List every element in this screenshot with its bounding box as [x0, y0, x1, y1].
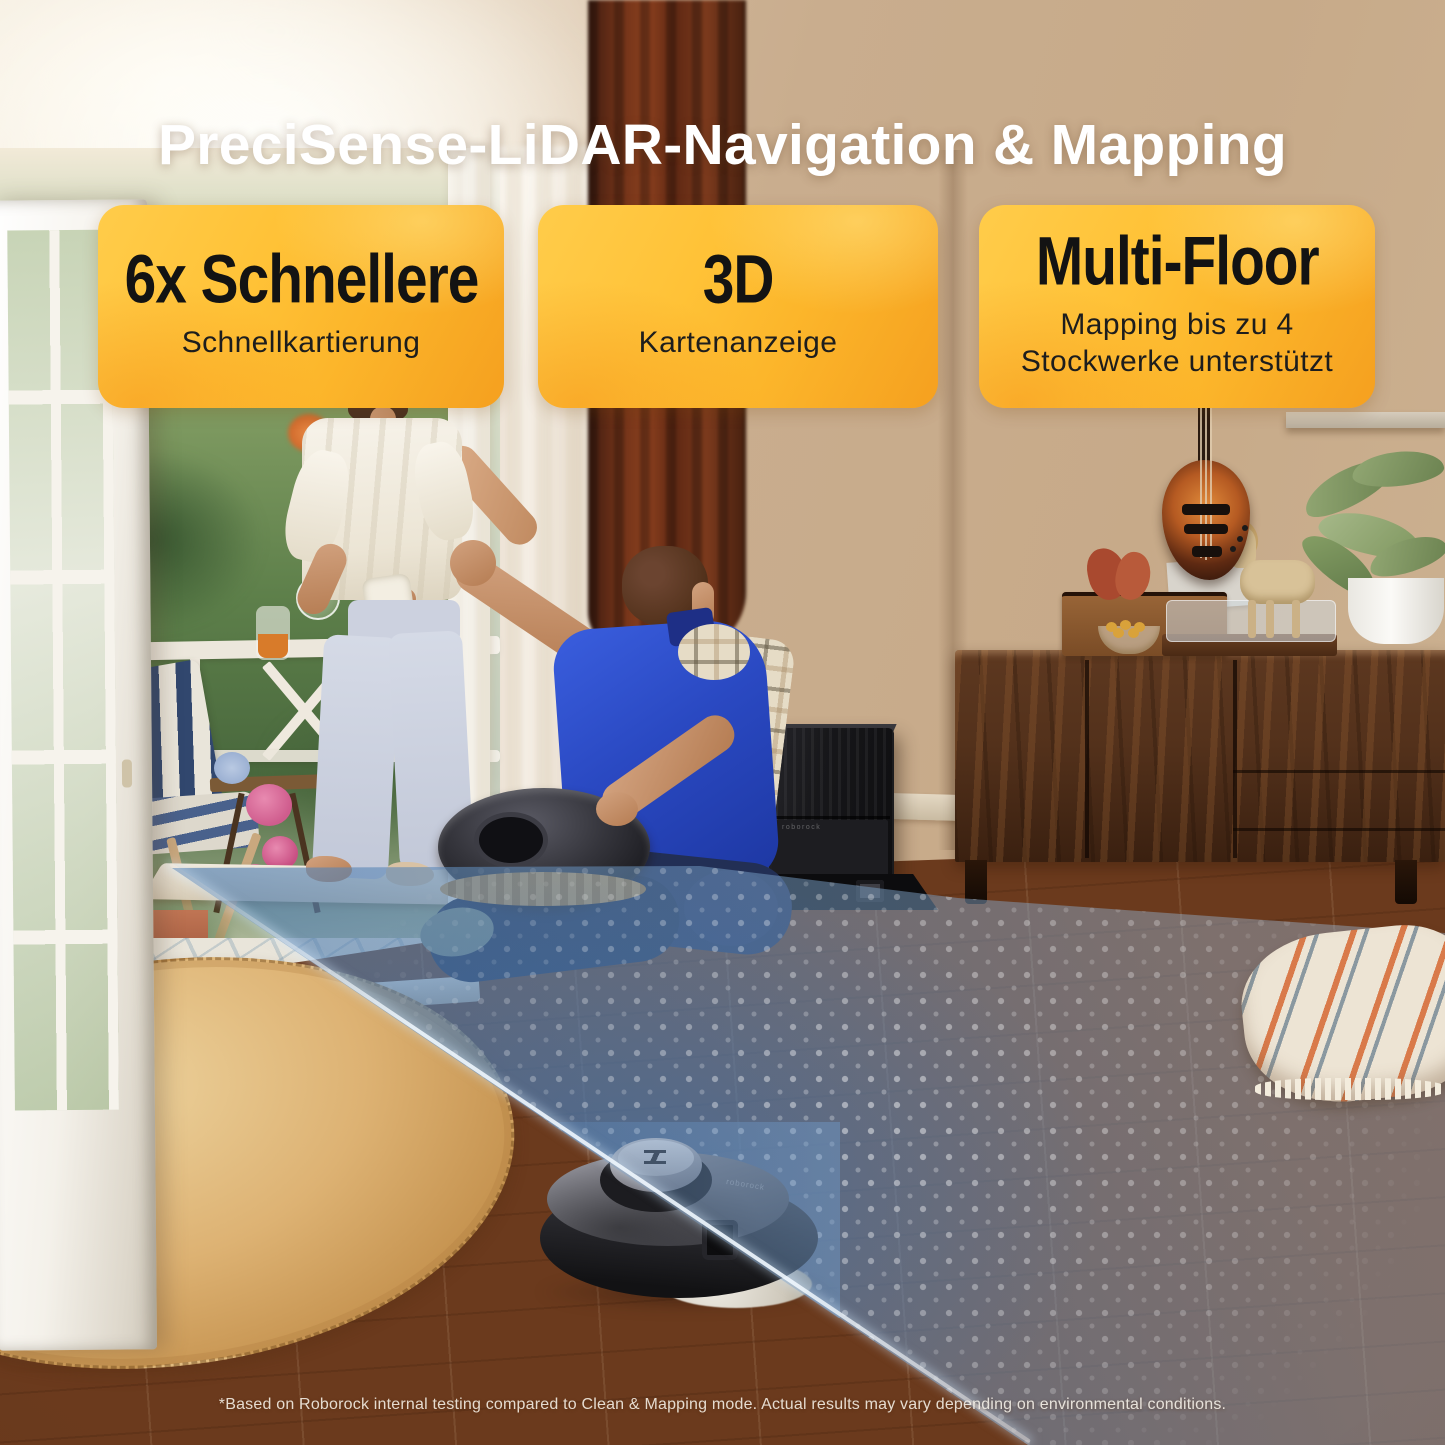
plant-pot — [1348, 578, 1444, 644]
straw-horse-leg — [1248, 600, 1256, 638]
juice-liquid — [258, 634, 288, 658]
robot-vacuum: roborock — [528, 1122, 840, 1318]
man-hand — [596, 792, 638, 826]
product-marketing-image: roborock — [0, 0, 1445, 1445]
plaid-wrap-knot — [678, 624, 750, 680]
disclaimer-text: *Based on Roborock internal testing comp… — [0, 1396, 1445, 1414]
blanket-fringe — [1255, 1078, 1445, 1100]
woman-jeans-leg — [312, 634, 401, 880]
sideboard-leg — [1395, 860, 1417, 904]
feature-card-subtitle: Mapping bis zu 4 Stockwerke unterstützt — [1005, 307, 1350, 380]
handpan-port — [474, 812, 548, 868]
feature-card-title: 6x Schnellere — [124, 246, 478, 314]
guitar-knob — [1230, 546, 1236, 552]
guitar-knob — [1237, 536, 1243, 542]
feature-card-subtitle: Kartenanzeige — [639, 325, 838, 362]
sideboard-drawer-seam — [1233, 828, 1445, 831]
guitar-string — [1200, 408, 1202, 558]
straw-horse-leg — [1266, 600, 1274, 638]
guitar-string — [1210, 408, 1212, 558]
feature-card-fast-mapping: 6x Schnellere Schnellkartierung — [98, 205, 504, 408]
feature-card-multi-floor: Multi-Floor Mapping bis zu 4 Stockwerke … — [979, 205, 1375, 408]
feature-card-title: Multi-Floor — [1036, 228, 1319, 296]
door-handle — [122, 759, 132, 787]
wall-shelf — [1286, 412, 1445, 428]
pink-peony — [246, 784, 292, 826]
page-title: PreciSense-LiDAR-Navigation & Mapping — [0, 112, 1445, 178]
feature-card-3d-map: 3D Kartenanzeige — [538, 205, 938, 408]
guitar-bridge — [1192, 546, 1222, 557]
guitar-pickup — [1184, 524, 1228, 534]
fruit — [1113, 628, 1124, 638]
feature-card-title: 3D — [703, 246, 774, 314]
straw-horse-leg — [1292, 600, 1300, 638]
hydrangea-flower — [214, 752, 250, 784]
feature-card-subtitle: Schnellkartierung — [182, 325, 421, 362]
fruit — [1128, 628, 1139, 638]
guitar-string — [1205, 408, 1207, 560]
guitar-knob — [1242, 525, 1248, 531]
sideboard-divider — [1085, 660, 1089, 858]
bass-guitar — [1150, 408, 1260, 588]
sideboard-leg — [965, 860, 987, 904]
guitar-pickup — [1182, 504, 1230, 515]
clasped-hands — [450, 540, 496, 586]
sideboard-drawer-seam — [1233, 770, 1445, 773]
